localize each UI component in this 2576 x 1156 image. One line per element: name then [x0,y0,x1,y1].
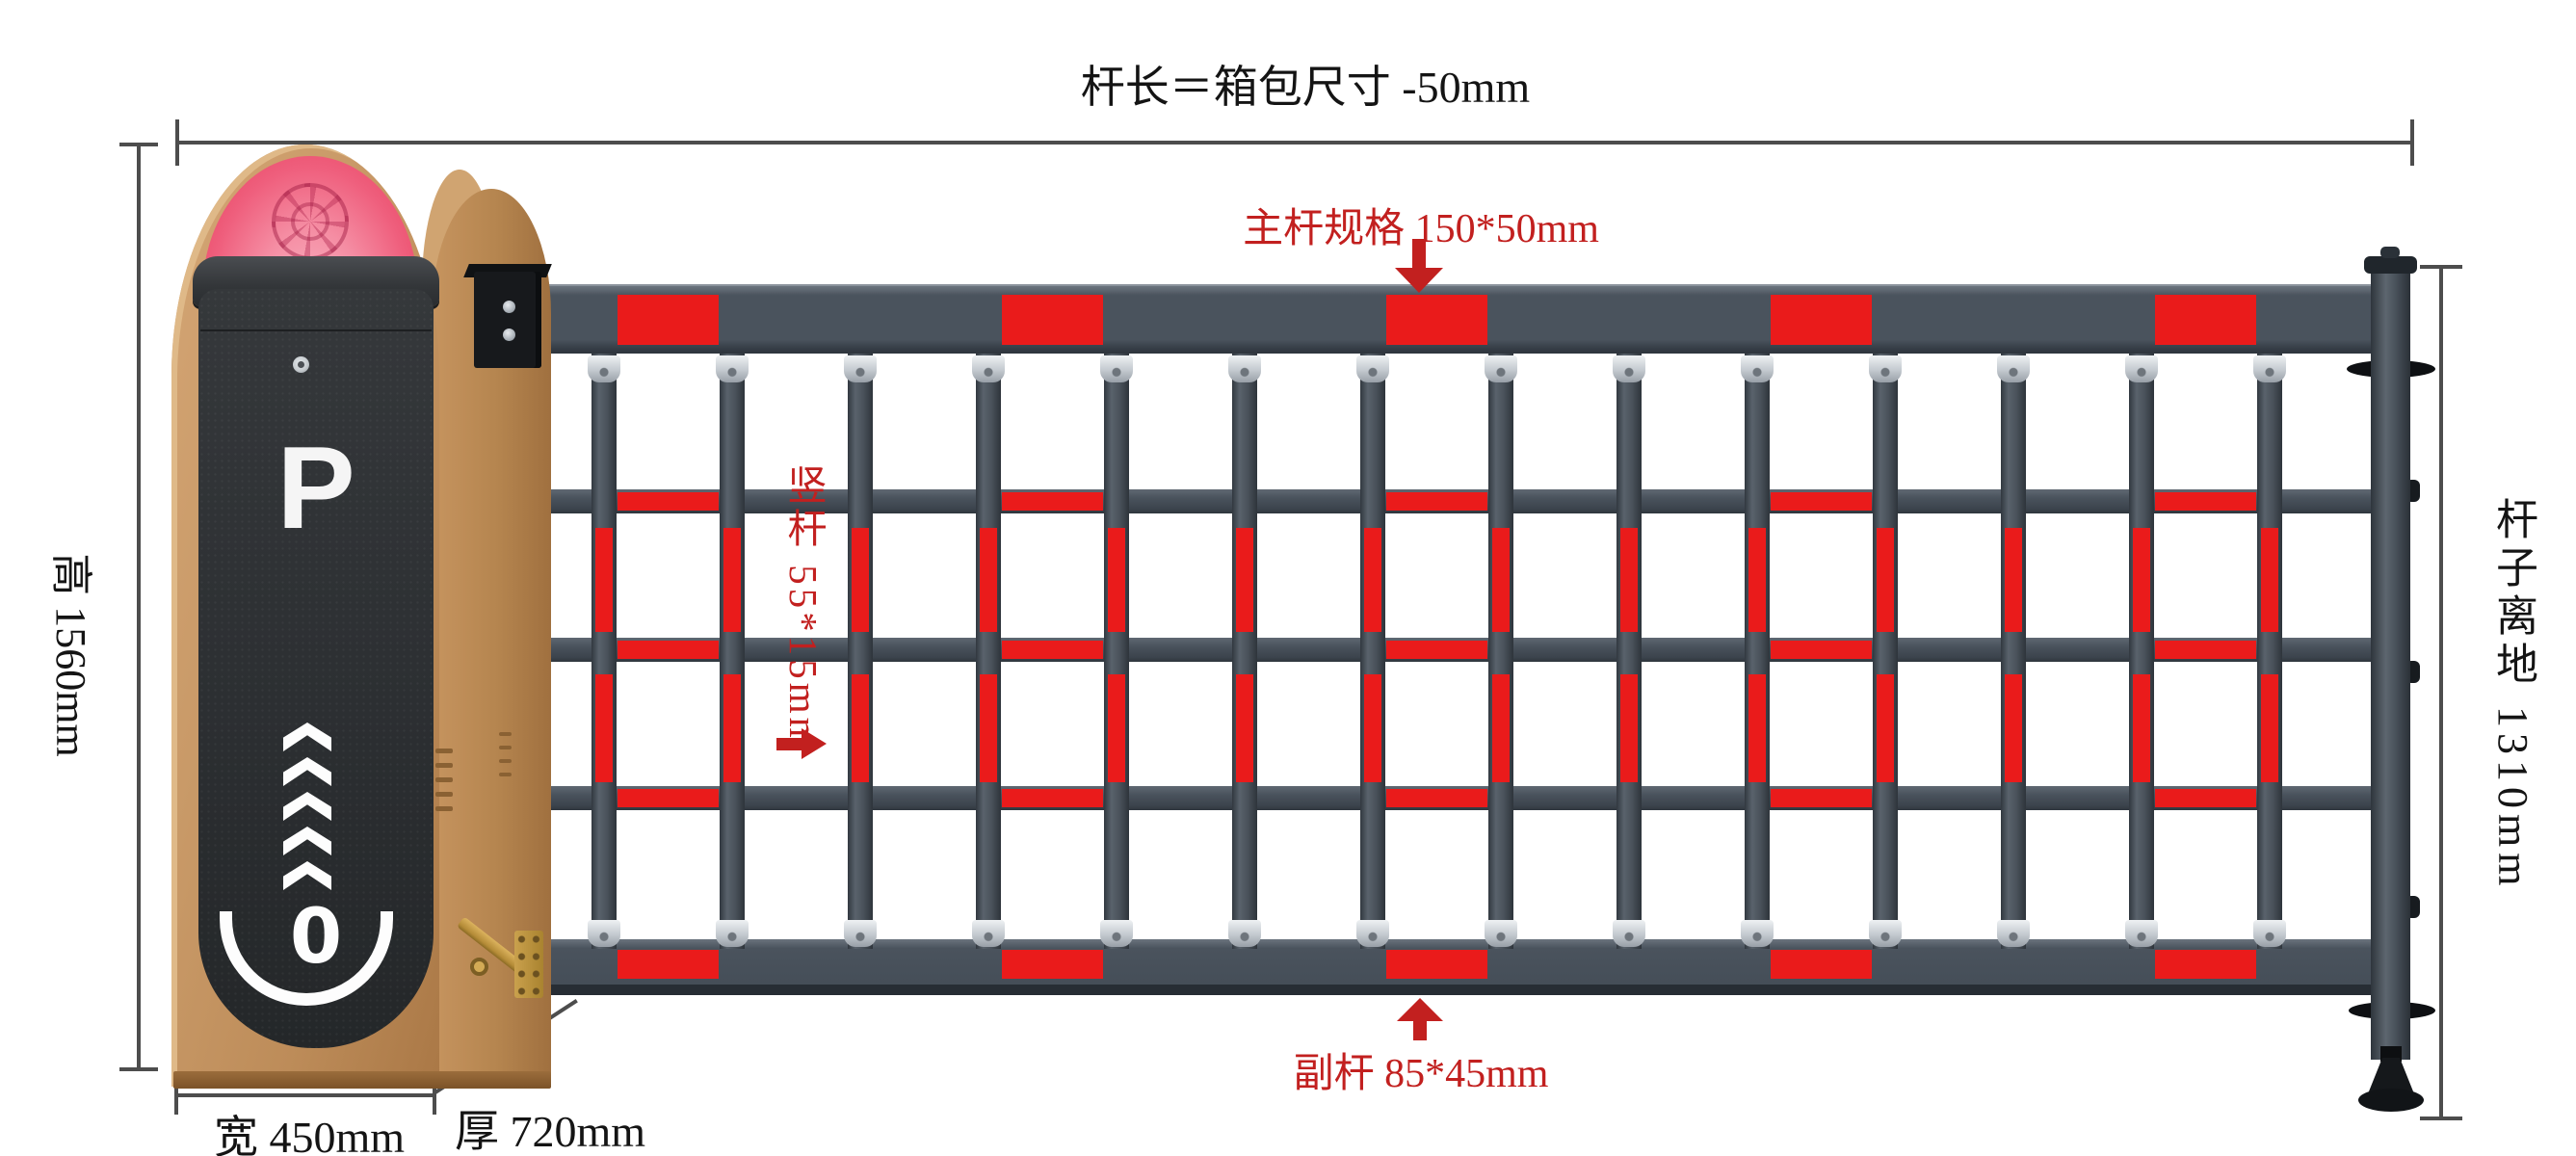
bar-reflector [852,674,869,782]
end-post-cap [2364,256,2417,274]
bar-reflector [980,528,997,632]
bar-reflector [2133,528,2150,632]
arm-length-tick-left [175,119,179,166]
fence-vertical-bar [1488,354,1513,949]
fence-vertical-bar [1617,354,1642,949]
lock-keyhole-dot [298,361,304,368]
mid-rail-reflector [2155,641,2256,659]
lock-keyhole [293,356,309,373]
ground-clearance-tick-bottom [2420,1117,2462,1120]
fence-vertical-bar [2129,354,2154,949]
bar-clip-top [1356,355,1389,382]
bar-reflector [1877,674,1894,782]
vent-slat [435,777,453,782]
bar-clip-top [972,355,1005,382]
bar-reflector [980,674,997,782]
mid-rail-reflector [2155,789,2256,807]
arm-bracket [474,272,541,368]
bar-reflector [852,528,869,632]
main-rail-arrow-shaft [1412,239,1426,270]
bar-clip-top [844,355,877,382]
bar-reflector [595,528,613,632]
bar-reflector [1748,528,1766,632]
vent-slat [435,749,453,753]
bar-clip-top [2253,355,2286,382]
bar-reflector [1748,674,1766,782]
vertical-bar-spec-label: 竖杆 55*15mm [775,464,832,752]
bar-reflector [1492,528,1510,632]
bar-reflector [1620,674,1638,782]
bar-reflector [1877,528,1894,632]
vent-slat [499,759,512,763]
vertical-bar-right-arrow-icon [802,728,827,759]
sub-rail [532,939,2381,985]
sub-rail-bottom-edge [532,985,2381,995]
ground-clearance-tick-top [2420,265,2462,269]
mid-rail-reflector [1386,641,1487,659]
sub-rail-arrow-shaft [1413,1020,1427,1040]
cabinet-base [173,1071,551,1089]
mid-rail-reflector [618,789,719,807]
bar-reflector [2261,674,2278,782]
arm-length-tick-right [2410,119,2414,166]
mid-rail-reflector [1002,641,1103,659]
cabinet-width-label: 宽 450mm [214,1102,405,1156]
vertical-bar-arrow-shaft [776,738,803,750]
bar-reflector [1108,528,1125,632]
fence-vertical-bar [1873,354,1898,949]
bar-reflector [2005,528,2022,632]
front-panel-seam [200,329,432,331]
main-rail-down-arrow-icon [1395,268,1443,293]
brand-emblem [272,183,349,260]
bracket-bolt-top [503,301,515,313]
end-post [2371,268,2410,1060]
sub-rail-spec-label: 副杆 85*45mm [1146,1040,1695,1099]
cabinet-height-label: 高 1560mm [44,433,106,877]
end-post-nub [2380,247,2400,258]
up-chevrons [283,722,331,896]
bar-reflector [1108,674,1125,782]
width-dimension-line [174,1093,436,1097]
bar-clip-top [1613,355,1645,382]
mid-rail-reflector [1386,789,1487,807]
brand-emblem-ring [291,202,329,241]
height-tick-top [119,143,158,146]
mid-rail-reflector [1002,492,1103,511]
sub-rail-support-clamp [514,931,543,998]
fence-vertical-bar [2001,354,2026,949]
bar-clip-top [716,355,749,382]
fence-vertical-bar [1232,354,1257,949]
height-tick-bottom [119,1067,158,1071]
barrier-gate-diagram: 杆长＝箱包尺寸 -50mm 高 1560mm 杆子离地 1310mm 宽 450… [0,0,2576,1156]
mid-rail-reflector [618,641,719,659]
sub-rail-support-pivot [470,958,488,976]
mid-rail-reflector [1771,641,1872,659]
arm-length-label: 杆长＝箱包尺寸 -50mm [920,52,1691,116]
height-dimension-line [137,143,141,1071]
vent-slat [435,806,453,811]
bar-reflector [723,528,741,632]
bar-reflector [2133,674,2150,782]
bar-clip-top [1869,355,1902,382]
mid-rail-reflector [2155,492,2256,511]
fence-vertical-bar [848,354,873,949]
bar-reflector [595,674,613,782]
bar-reflector [2261,528,2278,632]
ground-clearance-dimension-line [2439,265,2443,1120]
mid-rail-reflector [1002,789,1103,807]
bar-clip-top [1228,355,1261,382]
bar-reflector [1620,528,1638,632]
cabinet-depth-label: 厚 720mm [455,1096,645,1156]
up-chevron-icon [283,722,331,751]
parking-letter: P [198,420,434,555]
fence-vertical-bar [1360,354,1385,949]
bracket-bolt-bottom [503,328,515,341]
mid-rail-reflector [618,492,719,511]
vent-slat [435,763,453,768]
fence-vertical-bar [1745,354,1770,949]
fence-vertical-bar [591,354,617,949]
bar-clip-top [1997,355,2030,382]
sub-rail-up-arrow-icon [1397,998,1443,1021]
bar-clip-top [1100,355,1133,382]
fence-vertical-bar [1104,354,1129,949]
vent-slat [499,773,512,776]
arm-length-dimension-line [175,141,2414,144]
fence-vertical-bar [720,354,745,949]
fence-vertical-bar [976,354,1001,949]
fence-vertical-bar [2257,354,2282,949]
bar-clip-top [588,355,620,382]
bar-reflector [2005,674,2022,782]
bar-reflector [1236,674,1253,782]
bar-reflector [723,674,741,782]
bar-clip-top [1741,355,1774,382]
up-chevron-icon [283,861,331,890]
bar-reflector [1364,674,1381,782]
mid-rail-reflector [1771,492,1872,511]
post-foot-base [2358,1089,2424,1112]
vent-slat [499,732,512,736]
bar-clip-top [2125,355,2158,382]
bar-reflector [1492,674,1510,782]
bar-reflector [1236,528,1253,632]
up-chevron-icon [283,792,331,821]
bar-clip-top [1485,355,1517,382]
main-rail [532,284,2381,354]
mid-rail-reflector [1386,492,1487,511]
bar-reflector [1364,528,1381,632]
up-chevron-icon [283,827,331,855]
vent-slat [435,792,453,797]
vent-slat [499,746,512,749]
ground-clearance-label: 杆子离地 1310mm [2482,497,2543,891]
mid-rail [520,786,2381,810]
up-chevron-icon [283,757,331,786]
mid-rail-reflector [1771,789,1872,807]
